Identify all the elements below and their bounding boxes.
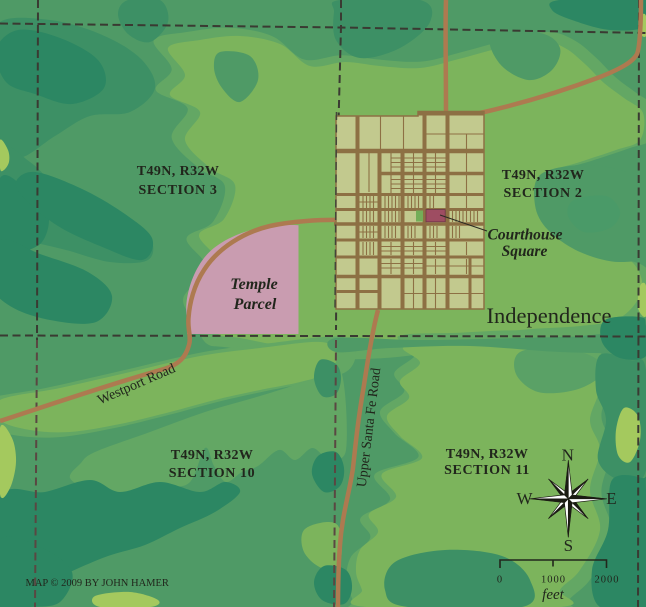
svg-text:SECTION 11: SECTION 11	[444, 463, 530, 478]
svg-text:0: 0	[497, 575, 503, 586]
svg-text:T49N, R32W: T49N, R32W	[171, 448, 254, 463]
svg-text:feet: feet	[542, 587, 564, 603]
svg-text:S: S	[564, 536, 573, 555]
svg-text:Parcel: Parcel	[233, 296, 277, 313]
svg-text:N: N	[562, 446, 574, 465]
svg-text:T49N, R32W: T49N, R32W	[137, 164, 220, 179]
svg-text:SECTION 3: SECTION 3	[139, 183, 218, 198]
svg-text:E: E	[606, 489, 616, 508]
svg-text:Independence: Independence	[487, 303, 612, 328]
svg-text:Temple: Temple	[230, 276, 277, 293]
svg-text:Square: Square	[502, 243, 548, 260]
svg-text:Courthouse: Courthouse	[488, 227, 563, 244]
svg-text:2000: 2000	[595, 575, 620, 586]
svg-text:SECTION 10: SECTION 10	[169, 466, 256, 481]
svg-text:W: W	[516, 489, 533, 508]
svg-text:SECTION 2: SECTION 2	[504, 186, 583, 201]
svg-text:MAP © 2009 BY JOHN HAMER: MAP © 2009 BY JOHN HAMER	[26, 578, 169, 589]
svg-text:1000: 1000	[541, 575, 566, 586]
svg-text:T49N, R32W: T49N, R32W	[446, 447, 529, 462]
svg-text:T49N, R32W: T49N, R32W	[502, 168, 585, 183]
